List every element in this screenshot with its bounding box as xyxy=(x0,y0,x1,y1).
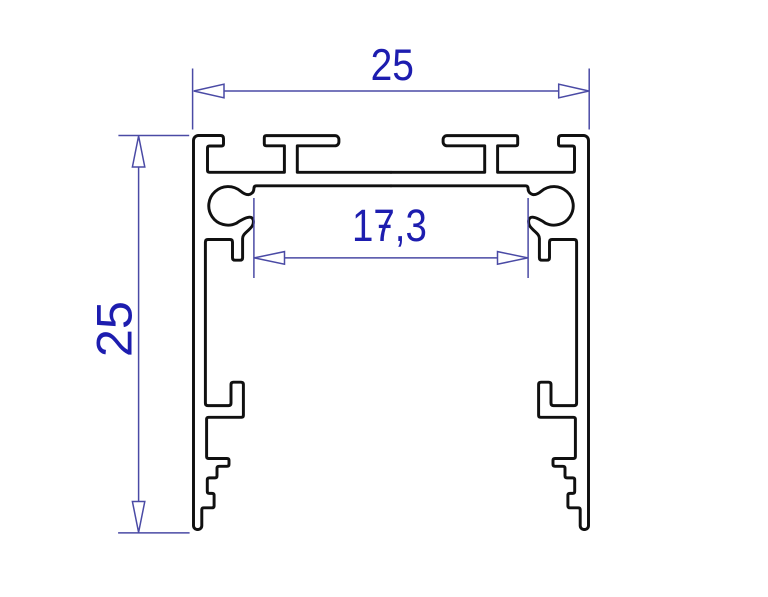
svg-text:25: 25 xyxy=(85,301,142,357)
svg-text:25: 25 xyxy=(371,40,414,90)
